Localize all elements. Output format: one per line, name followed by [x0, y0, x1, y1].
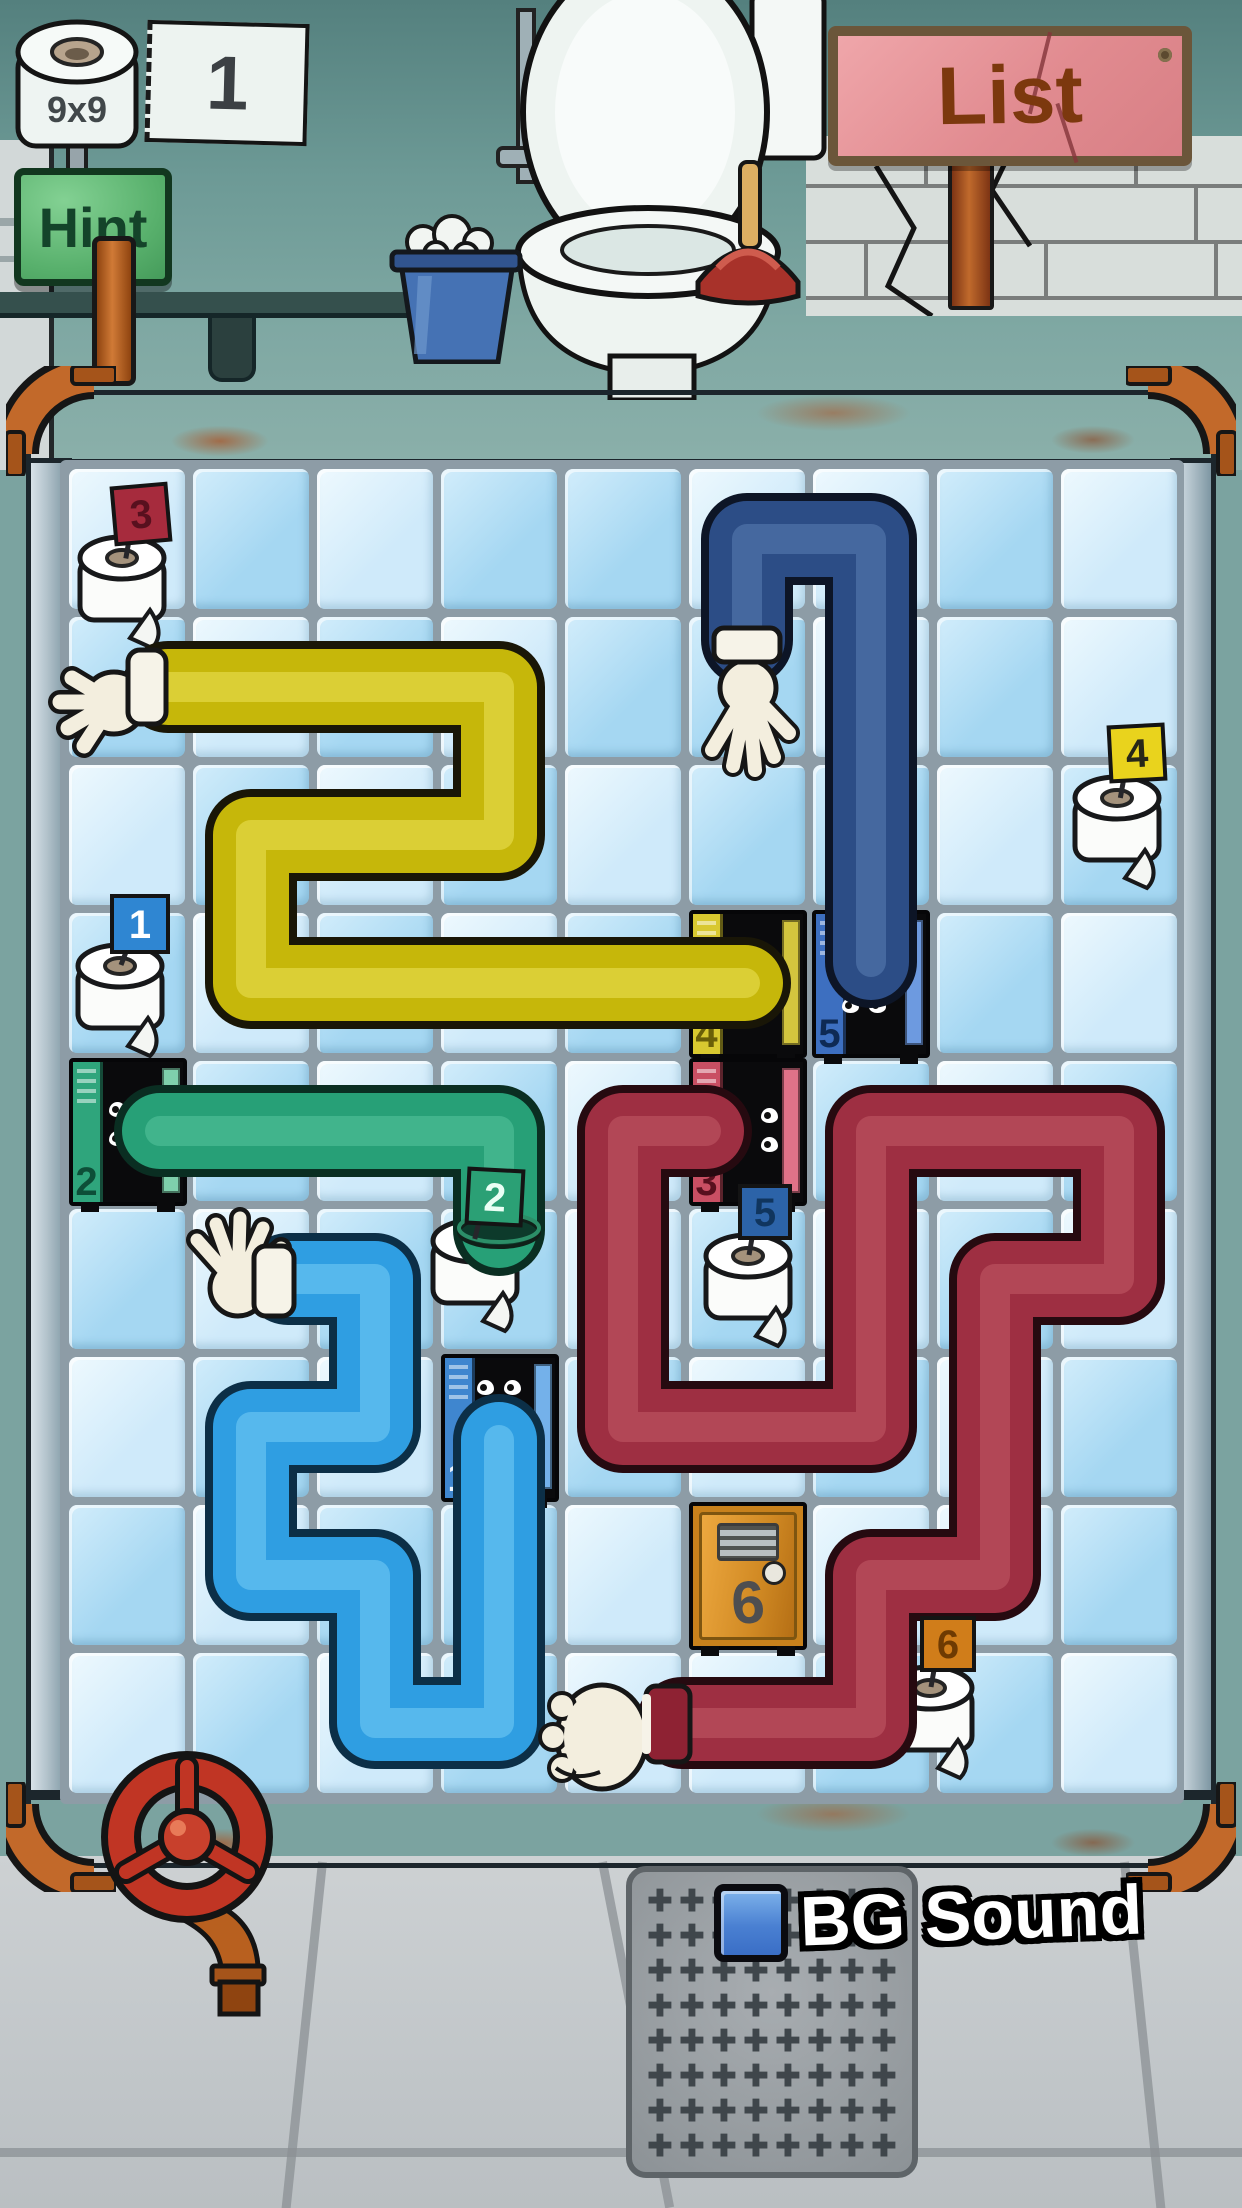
drain-hole: ✚: [836, 2094, 868, 2129]
drain-hole: ✚: [836, 1989, 868, 2024]
drain-hole: ✚: [644, 2059, 676, 2094]
drain-hole: ✚: [772, 2059, 804, 2094]
drain-hole: ✚: [772, 1989, 804, 2024]
svg-text:2: 2: [483, 1175, 508, 1220]
drain-hole: ✚: [868, 1954, 900, 1989]
drain-hole: ✚: [772, 2094, 804, 2129]
drain-hole: ✚: [644, 1919, 676, 1954]
drain-hole: ✚: [836, 2059, 868, 2094]
drain-hole: ✚: [676, 1884, 708, 1919]
drain-hole: ✚: [644, 2129, 676, 2164]
cuff-navy: [714, 628, 780, 662]
valve-wheel: [90, 1742, 300, 2032]
svg-text:3: 3: [128, 492, 154, 538]
game-screen: List 9x9 1 Hint: [0, 0, 1242, 2208]
drain-hole: ✚: [772, 2024, 804, 2059]
cuff-red: [646, 1686, 690, 1762]
drain-hole: ✚: [804, 2129, 836, 2164]
drain-hole: ✚: [676, 1919, 708, 1954]
drain-hole: ✚: [676, 1989, 708, 2024]
cuff-azure: [254, 1246, 294, 1316]
drain-hole: ✚: [676, 1954, 708, 1989]
drain-hole: ✚: [740, 2129, 772, 2164]
hand-red[interactable]: [540, 1685, 690, 1789]
bg-sound-label: BG Sound: [799, 1867, 1232, 1962]
drain-hole: ✚: [708, 2094, 740, 2129]
drain-hole: ✚: [708, 2024, 740, 2059]
drain-hole: ✚: [708, 2059, 740, 2094]
svg-text:1: 1: [129, 903, 151, 947]
drain-hole: ✚: [644, 2094, 676, 2129]
drain-hole: ✚: [836, 2024, 868, 2059]
drain-hole: ✚: [868, 2059, 900, 2094]
drain-hole: ✚: [868, 2129, 900, 2164]
drain-hole: ✚: [740, 2024, 772, 2059]
hand-yellow[interactable]: [60, 650, 166, 746]
drain-hole: ✚: [676, 2059, 708, 2094]
drain-hole: ✚: [868, 2094, 900, 2129]
hand-navy[interactable]: [712, 628, 789, 770]
drain-hole: ✚: [804, 2059, 836, 2094]
drain-hole: ✚: [644, 1884, 676, 1919]
drain-hole: ✚: [804, 1989, 836, 2024]
drain-hole: ✚: [740, 2059, 772, 2094]
drain-hole: ✚: [740, 2094, 772, 2129]
hand-azure[interactable]: [197, 1218, 294, 1316]
drain-hole: ✚: [676, 2024, 708, 2059]
drain-hole: ✚: [868, 1989, 900, 2024]
drain-hole: ✚: [676, 2094, 708, 2129]
svg-text:6: 6: [937, 1623, 959, 1667]
cuff-yellow: [128, 650, 166, 724]
drain-hole: ✚: [772, 2129, 804, 2164]
drain-hole: ✚: [804, 2024, 836, 2059]
drain-hole: ✚: [708, 1989, 740, 2024]
drain-hole: ✚: [868, 2024, 900, 2059]
toilet-roll-3[interactable]: [80, 537, 164, 648]
svg-text:5: 5: [754, 1191, 776, 1235]
drain-hole: ✚: [804, 2094, 836, 2129]
drain-hole: ✚: [644, 2024, 676, 2059]
toilet-roll-4[interactable]: [1075, 777, 1159, 888]
drain-hole: ✚: [708, 2129, 740, 2164]
svg-text:4: 4: [1125, 731, 1150, 776]
drain-hole: ✚: [644, 1989, 676, 2024]
drain-hole: ✚: [836, 2129, 868, 2164]
drain-hole: ✚: [644, 1954, 676, 1989]
bg-sound-checkbox[interactable]: [714, 1884, 788, 1962]
drain-hole: ✚: [740, 1989, 772, 2024]
pipe-red[interactable]: [623, 1131, 1119, 1723]
drain-hole: ✚: [676, 2129, 708, 2164]
